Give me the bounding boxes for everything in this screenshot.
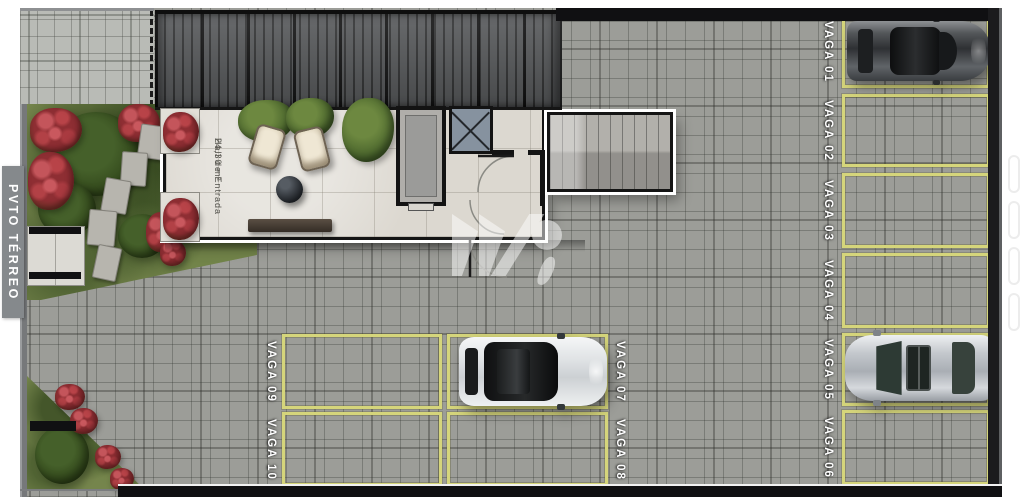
parking-space-08: [447, 412, 608, 486]
bottom-edge-line: [20, 489, 118, 491]
parking-label-06: VAGA 06: [820, 417, 836, 479]
parking-label-01: VAGA 01: [820, 21, 836, 83]
car-mirror: [873, 330, 881, 336]
sidewalk: [20, 8, 154, 105]
edge-watermark-mark: [1008, 155, 1020, 193]
roof-deck: [155, 10, 562, 110]
margin-bottom: [0, 497, 1024, 502]
parking-space-03: [842, 173, 990, 248]
parking-label-07: VAGA 07: [612, 341, 628, 403]
edge-watermark-mark: [1008, 201, 1020, 239]
property-dashed-line: [150, 10, 153, 106]
garden-wall-segment: [30, 421, 76, 431]
parking-space-02: [842, 94, 990, 167]
car-mirror: [933, 80, 940, 85]
bottom-boundary-wall: [118, 486, 1002, 497]
edge-watermark-mark: [1008, 293, 1020, 331]
parking-space-04: [842, 253, 990, 328]
entry-gate-wall: [29, 272, 81, 279]
right-boundary-wall: [988, 8, 1002, 497]
parking-space-06: [842, 410, 990, 485]
stepping-stone: [86, 209, 117, 247]
site-plan: Hall de Entrada 24,30 m² VAGA 09 VAGA 10…: [0, 0, 1024, 502]
studio-logo-watermark: [452, 208, 572, 293]
hall-label: Hall de Entrada 24,30 m²: [197, 138, 223, 242]
margin-top: [0, 0, 1024, 8]
white-crossover-car: [459, 337, 607, 406]
gray-coupe-car: [847, 21, 990, 81]
parking-space-09: [282, 334, 442, 409]
car-mirror: [557, 404, 565, 410]
parking-label-04: VAGA 04: [820, 260, 836, 322]
car-mirror: [873, 400, 881, 406]
entry-gate-wall: [29, 227, 81, 234]
garden-bush: [35, 426, 89, 484]
hall-area: 24,30 m²: [212, 138, 223, 182]
floor-label: PVTO TÉRREO: [2, 166, 24, 318]
parking-label-09: VAGA 09: [263, 341, 279, 403]
edge-watermark-mark: [1008, 247, 1020, 285]
parking-label-05: VAGA 05: [820, 339, 836, 401]
silver-sedan-car: [845, 335, 994, 401]
parking-label-10: VAGA 10: [263, 419, 279, 481]
top-boundary-wall: [556, 8, 1002, 21]
parking-label-08: VAGA 08: [612, 419, 628, 481]
sidewalk-edge-line: [20, 8, 154, 11]
bench: [248, 219, 332, 232]
parking-label-03: VAGA 03: [820, 180, 836, 242]
parking-label-02: VAGA 02: [820, 100, 836, 162]
parking-space-10: [282, 412, 442, 486]
ottoman-table: [276, 176, 303, 203]
car-mirror: [557, 333, 565, 339]
